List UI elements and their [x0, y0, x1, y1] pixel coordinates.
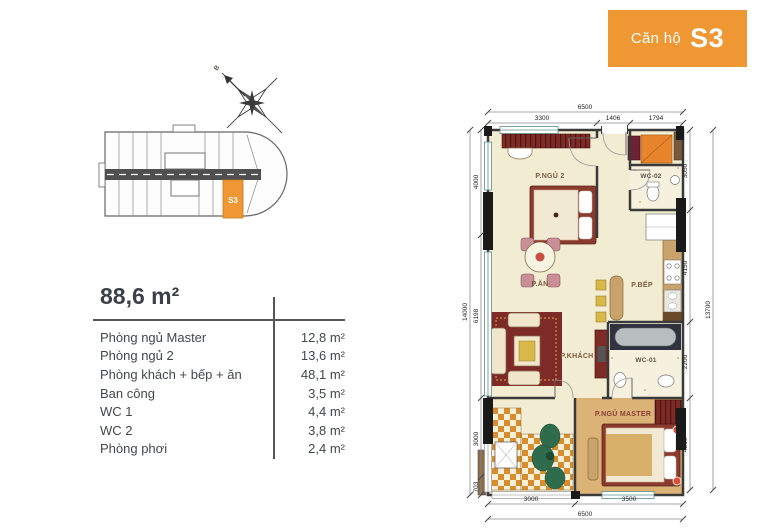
area-row: WC 23,8 m² — [93, 421, 345, 440]
area-rows: Phòng ngủ Master12,8 m² Phòng ngủ 213,6 … — [93, 328, 345, 458]
dim-right-2: 4150 — [682, 260, 689, 275]
compass-rose: B — [213, 64, 282, 133]
unit-badge-code: S3 — [690, 23, 724, 54]
area-row: Phòng ngủ Master12,8 m² — [93, 328, 345, 347]
bed-bedroom2 — [530, 186, 596, 244]
dim-right-1: 3050 — [682, 163, 689, 178]
dim-top-total: 6500 — [578, 104, 593, 111]
unit-floorplan: P.NGỦ 2 WC-02 P.ĂN P.BẾP P.KHÁCH WC-01 P… — [450, 90, 760, 531]
dim-bottom-2: 3500 — [622, 496, 637, 503]
room-label: Phòng phơi — [100, 441, 167, 456]
floorplate-outline: S3 — [99, 125, 287, 218]
room-area: 13,6 m² — [281, 348, 345, 363]
dim-left-total: 14000 — [462, 303, 469, 321]
dim-left-3: 3000 — [473, 431, 480, 446]
dim-left-4: 703 — [473, 481, 480, 492]
room-label: WC 1 — [100, 404, 133, 419]
label-dining: P.ĂN — [531, 279, 548, 288]
label-wc1: WC-01 — [635, 357, 656, 364]
unit-badge-prefix: Căn hộ — [631, 30, 681, 47]
washbasin — [658, 375, 674, 387]
building-overview: B S3 — [95, 55, 295, 240]
toilet — [614, 373, 626, 388]
dim-bottom-1: 3000 — [524, 496, 539, 503]
label-master: P.NGỦ MASTER — [595, 409, 651, 418]
label-bedroom2: P.NGỦ 2 — [535, 171, 564, 180]
room-area: 12,8 m² — [281, 330, 345, 345]
area-row: Phòng phơi2,4 m² — [93, 440, 345, 459]
wardrobe-bedroom2 — [502, 134, 590, 148]
total-area: 88,6 m² — [93, 283, 345, 321]
label-wc2: WC-02 — [640, 173, 661, 180]
room-area: 3,5 m² — [281, 386, 345, 401]
unit-badge: Căn hộ S3 — [608, 10, 747, 67]
room-area: 2,4 m² — [281, 441, 345, 456]
room-label: Phòng ngủ Master — [100, 330, 206, 345]
stove — [664, 260, 681, 284]
dim-left-1: 4000 — [473, 174, 480, 189]
area-row: WC 14,4 m² — [93, 402, 345, 421]
dim-right-4: 4300 — [682, 437, 689, 452]
dim-top-1: 3300 — [535, 115, 550, 122]
kitchen-counter — [663, 240, 683, 322]
room-label: Phòng ngủ 2 — [100, 348, 174, 363]
highlighted-unit-label: S3 — [228, 196, 238, 205]
sofa-set — [490, 312, 562, 386]
bed-bench — [588, 438, 598, 480]
table-divider — [273, 297, 275, 459]
area-row: Phòng khách + bếp + ăn48,1 m² — [93, 365, 345, 384]
washbasin — [671, 176, 680, 185]
room-label: WC 2 — [100, 423, 133, 438]
dim-top-3: 1794 — [649, 115, 664, 122]
dressing-table — [508, 148, 532, 159]
tv-cabinet — [595, 330, 608, 378]
dim-bottom-total: 6500 — [578, 511, 593, 518]
room-label: Phòng khách + bếp + ăn — [100, 367, 242, 382]
dim-left-2: 6198 — [473, 308, 480, 323]
room-label: Ban công — [100, 386, 155, 401]
label-living: P.KHÁCH — [560, 351, 593, 360]
area-row: Phòng ngủ 213,6 m² — [93, 347, 345, 366]
dim-top-2: 1406 — [606, 115, 621, 122]
dim-right-total: 13700 — [705, 301, 712, 319]
room-area: 3,8 m² — [281, 423, 345, 438]
floorplan-sheet: Căn hộ S3 B — [0, 0, 760, 531]
area-row: Ban công3,5 m² — [93, 384, 345, 403]
bed-master — [588, 424, 681, 486]
area-summary: 88,6 m² Phòng ngủ Master12,8 m² Phòng ng… — [93, 283, 345, 458]
compass-north-label: B — [213, 64, 222, 72]
room-area: 48,1 m² — [281, 367, 345, 382]
room-area: 4,4 m² — [281, 404, 345, 419]
toilet — [647, 185, 659, 201]
dim-right-3: 2200 — [682, 354, 689, 369]
